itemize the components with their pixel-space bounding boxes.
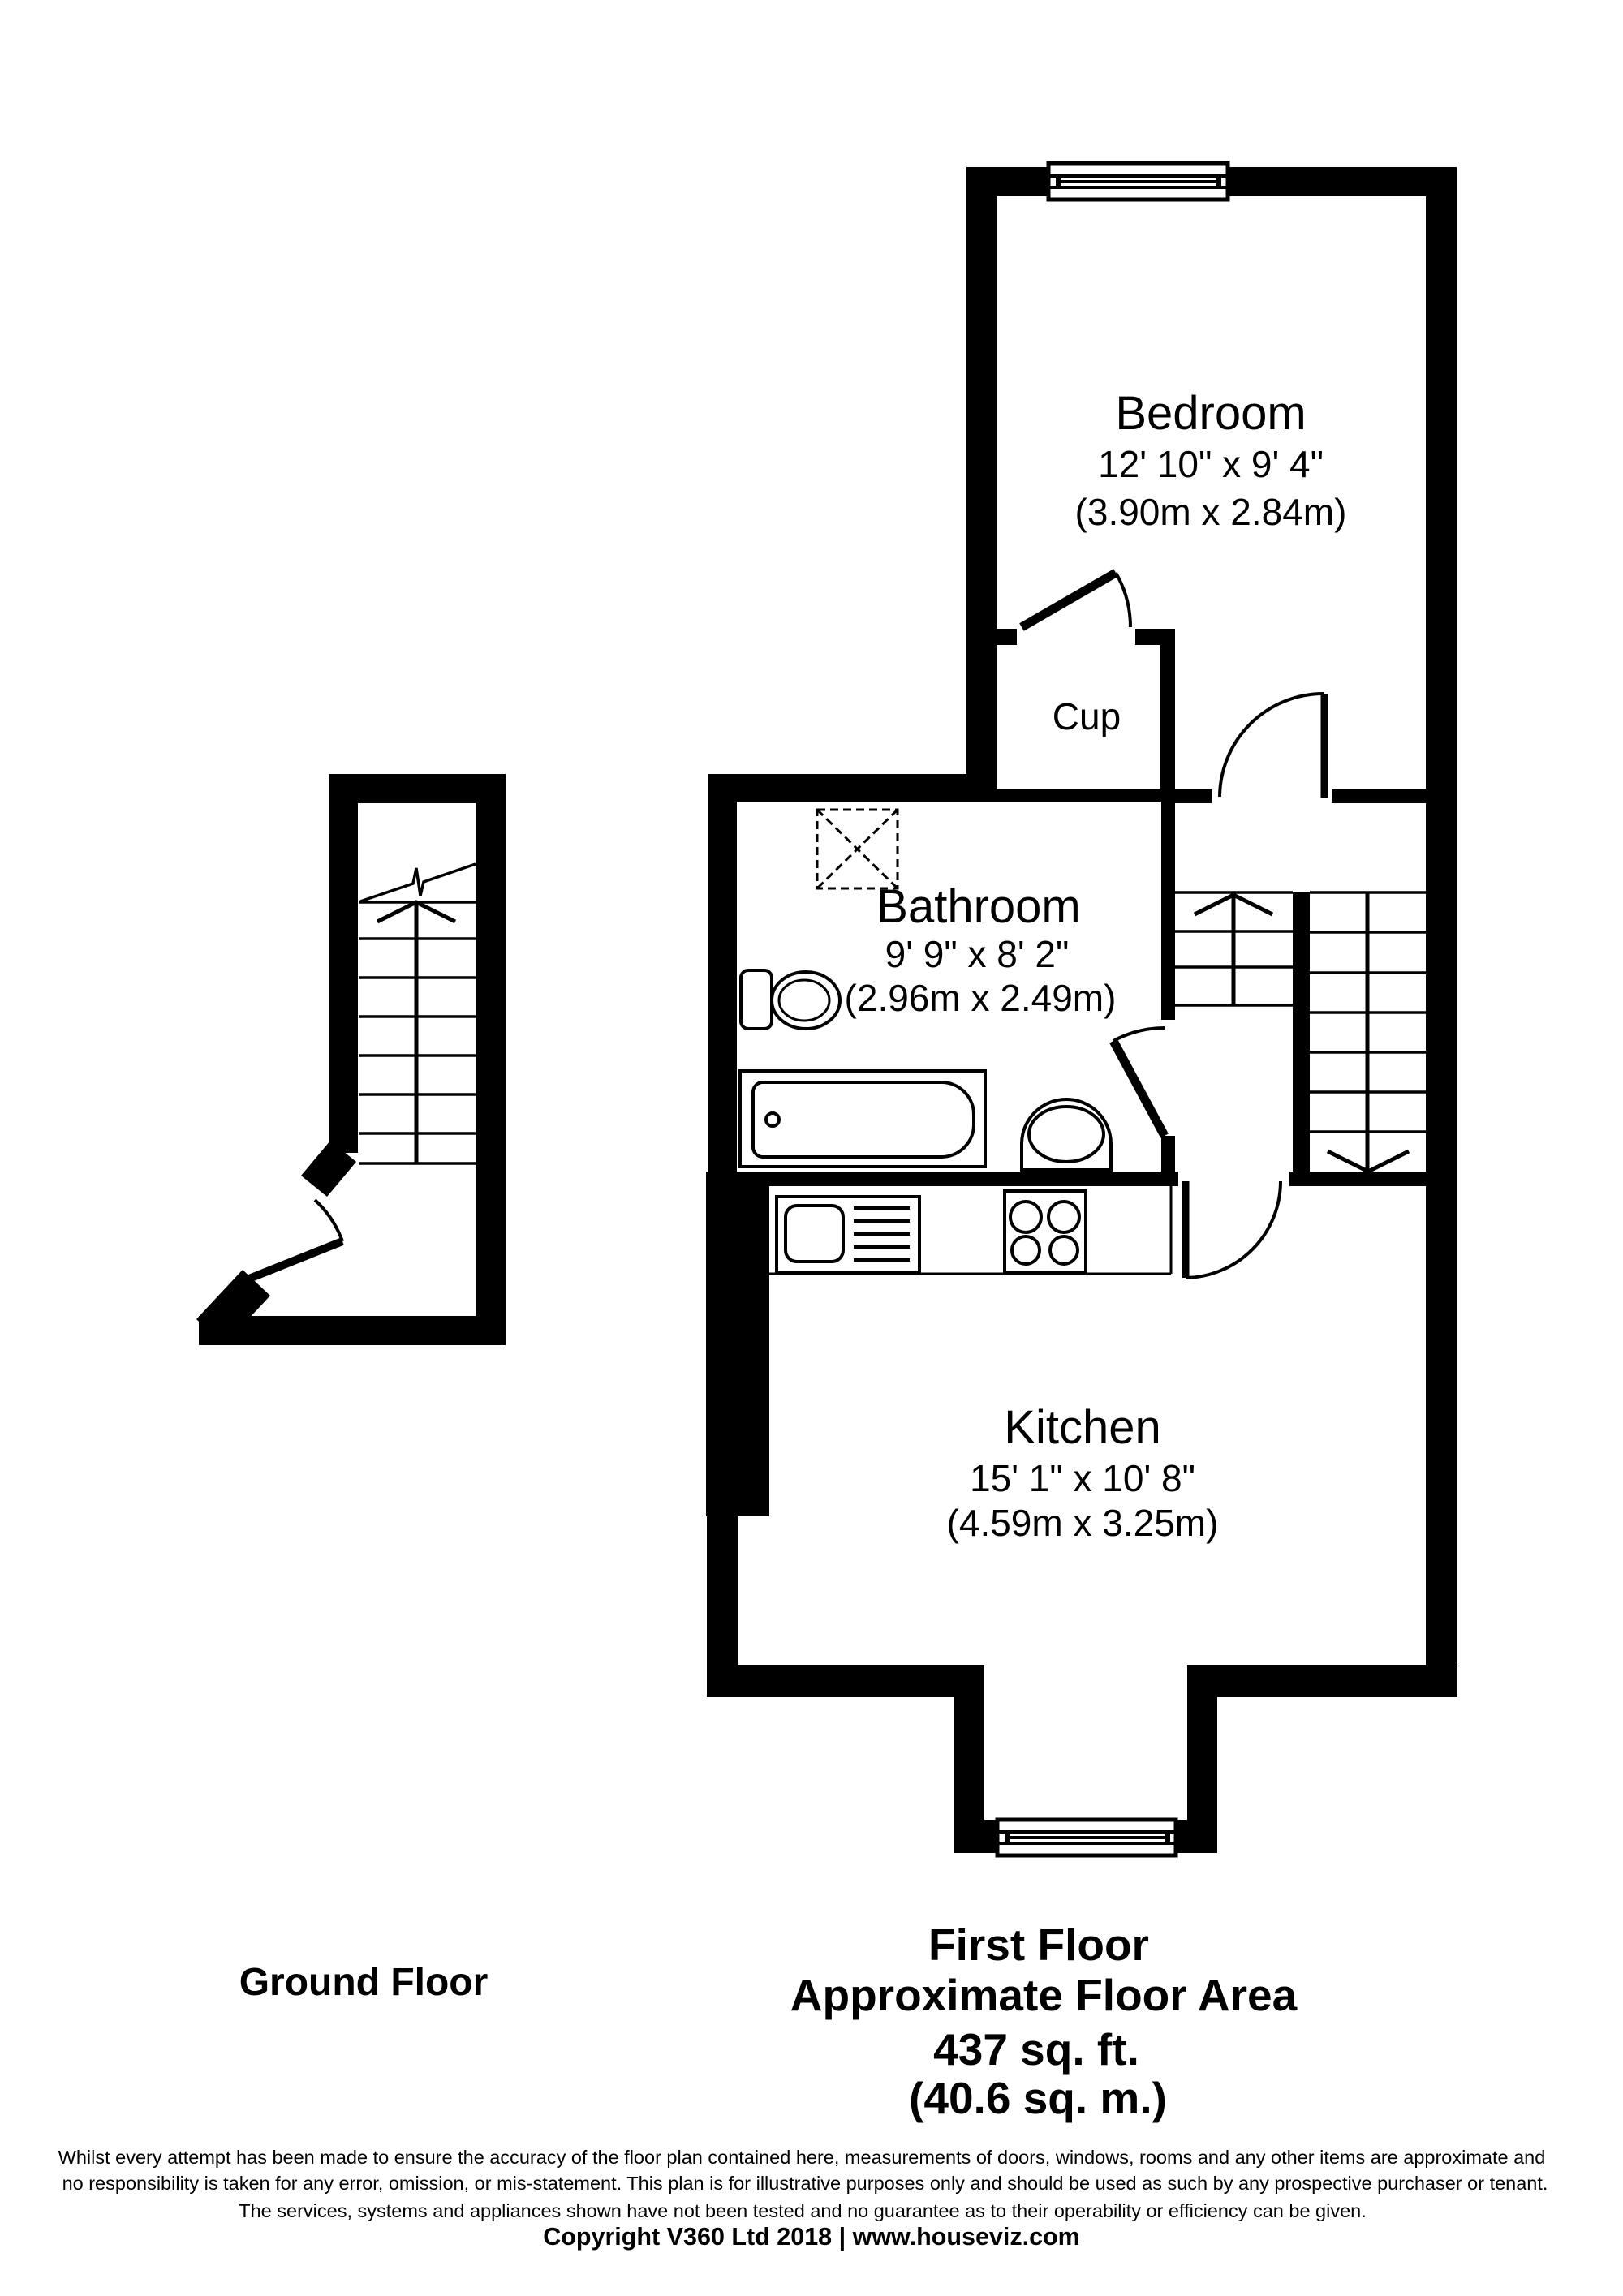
- svg-text:Whilst every attempt has been: Whilst every attempt has been made to en…: [58, 2147, 1546, 2168]
- svg-text:437 sq. ft.: 437 sq. ft.: [933, 2024, 1139, 2075]
- svg-text:Ground Floor: Ground Floor: [239, 1961, 489, 2004]
- svg-text:9' 9" x 8' 2": 9' 9" x 8' 2": [885, 933, 1070, 975]
- svg-text:(3.90m x 2.84m): (3.90m x 2.84m): [1075, 491, 1347, 533]
- svg-text:Bedroom: Bedroom: [1115, 387, 1306, 440]
- svg-text:Bathroom: Bathroom: [876, 880, 1080, 933]
- svg-text:Approximate Floor Area: Approximate Floor Area: [790, 1970, 1298, 2020]
- svg-text:Cup: Cup: [1053, 695, 1121, 737]
- svg-text:(4.59m x 3.25m): (4.59m x 3.25m): [947, 1502, 1219, 1544]
- svg-text:(40.6 sq. m.): (40.6 sq. m.): [909, 2073, 1167, 2123]
- svg-text:Kitchen: Kitchen: [1004, 1401, 1160, 1454]
- svg-text:(2.96m x 2.49m): (2.96m x 2.49m): [845, 977, 1117, 1019]
- svg-text:15' 1" x 10' 8": 15' 1" x 10' 8": [970, 1457, 1195, 1499]
- svg-text:First Floor: First Floor: [928, 1920, 1149, 1970]
- svg-text:The services, systems and appl: The services, systems and appliances sho…: [239, 2200, 1367, 2221]
- svg-text:Copyright V360 Ltd 2018 | www.: Copyright V360 Ltd 2018 | www.houseviz.c…: [543, 2223, 1080, 2251]
- svg-text:no responsibility is taken for: no responsibility is taken for any error…: [62, 2173, 1548, 2194]
- svg-text:12' 10" x 9' 4": 12' 10" x 9' 4": [1098, 443, 1324, 485]
